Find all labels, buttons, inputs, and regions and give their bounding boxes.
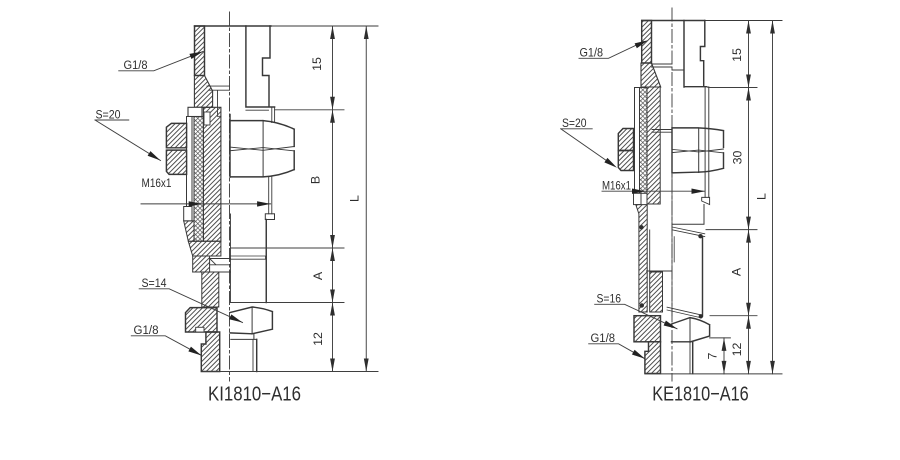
- svg-text:G1/8: G1/8: [591, 331, 616, 345]
- svg-text:S=20: S=20: [96, 108, 121, 122]
- svg-text:M16x1: M16x1: [602, 178, 631, 192]
- svg-text:12: 12: [730, 343, 744, 357]
- svg-text:S=14: S=14: [142, 276, 167, 290]
- svg-text:S=16: S=16: [597, 292, 622, 306]
- svg-text:A: A: [730, 267, 744, 276]
- svg-text:7: 7: [706, 352, 720, 359]
- svg-text:L: L: [755, 193, 769, 200]
- svg-text:15: 15: [730, 48, 744, 62]
- svg-text:S=20: S=20: [562, 116, 587, 130]
- svg-text:G1/8: G1/8: [580, 45, 604, 59]
- svg-text:KE1810−A16: KE1810−A16: [652, 383, 749, 406]
- svg-text:30: 30: [731, 151, 745, 165]
- svg-text:15: 15: [310, 57, 324, 71]
- svg-text:G1/8: G1/8: [124, 58, 148, 72]
- svg-text:A: A: [311, 271, 325, 280]
- svg-text:G1/8: G1/8: [134, 323, 159, 337]
- svg-text:B: B: [309, 176, 323, 184]
- svg-text:M16x1: M16x1: [142, 176, 172, 190]
- svg-text:12: 12: [311, 332, 325, 346]
- svg-text:KI1810−A16: KI1810−A16: [208, 383, 301, 406]
- svg-text:L: L: [348, 195, 362, 202]
